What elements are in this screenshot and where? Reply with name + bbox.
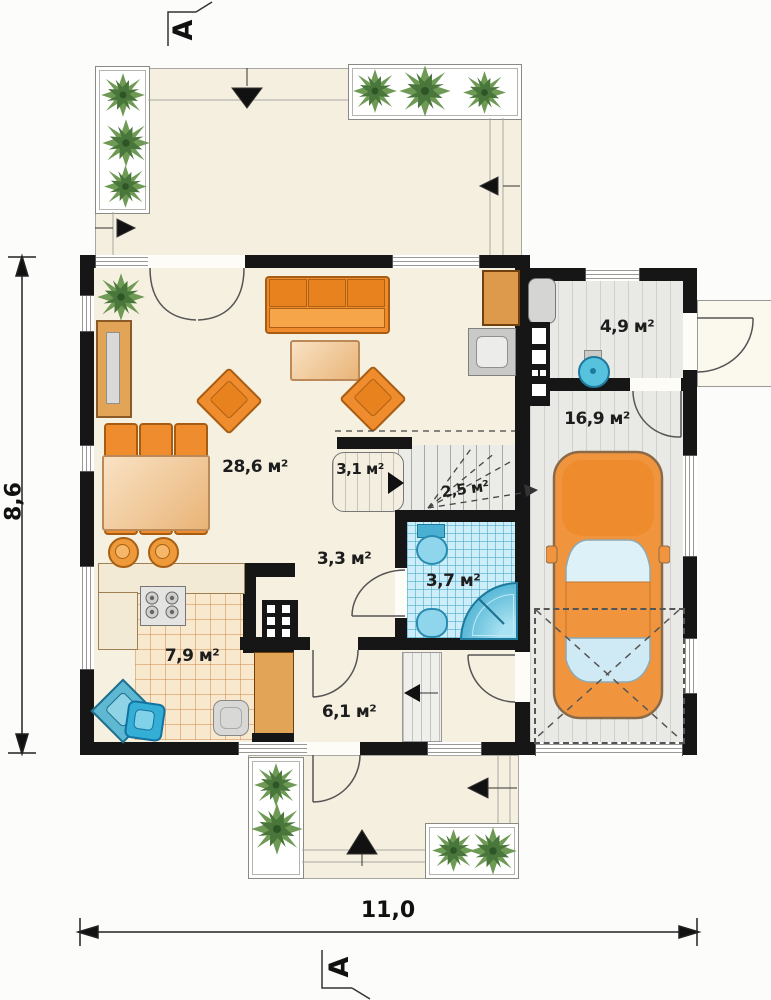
window (80, 445, 94, 472)
fireplace-unit (468, 328, 516, 376)
sofa-cushion (308, 279, 346, 307)
hall-garage-door-opening (515, 652, 530, 702)
plant-icon (468, 826, 518, 876)
window (585, 268, 640, 281)
window (392, 255, 480, 268)
side-stoop (697, 300, 771, 387)
plant-icon (100, 72, 146, 118)
flue-duct (267, 605, 275, 613)
room-area-label-hall: 3,3 м² (317, 549, 371, 569)
cabinet-cap (252, 733, 294, 742)
fridge-top (220, 707, 242, 729)
plant-icon (462, 70, 507, 115)
sofa-cushion (269, 279, 307, 307)
sink-basin (124, 700, 167, 743)
room-area-label-utility: 4,9 м² (600, 317, 654, 337)
drain (590, 368, 596, 374)
wall (337, 437, 412, 449)
utility-knob (540, 370, 546, 376)
bathroom-door-opening (395, 568, 407, 618)
shower-tray (472, 594, 514, 636)
utility-sink (578, 356, 610, 388)
flue-duct (267, 617, 275, 625)
stairs-treads (398, 445, 515, 510)
window (80, 566, 94, 670)
room-area-label-kitchen: 7,9 м² (165, 646, 219, 666)
entry-door-opening (307, 742, 360, 755)
section-marker-top: A (166, 13, 200, 47)
window (683, 638, 697, 694)
armchair-seat (353, 378, 393, 418)
sideboard-glass (106, 332, 120, 404)
wall (395, 510, 530, 522)
plant-icon (103, 164, 148, 209)
tall-cabinet (482, 270, 520, 326)
flue-duct (282, 617, 290, 625)
window (683, 455, 697, 557)
plant-icon (352, 68, 398, 114)
bar-stool (108, 537, 139, 568)
room-area-label-pantry: 3,1 м² (336, 460, 384, 478)
toilet (416, 535, 448, 565)
water-heater (528, 278, 556, 324)
dimension-width: 11,0 (348, 898, 428, 923)
room-area-label-entry: 6,1 м² (322, 702, 376, 722)
bar-stool (148, 537, 179, 568)
window (238, 742, 309, 755)
sofa (265, 276, 390, 334)
garage-door-swing-zone (534, 608, 685, 744)
window (427, 742, 482, 755)
kitchen-counter (98, 592, 138, 650)
floor-plan: 28,6 м² 3,1 м² 2,5 м² 4,9 м² 16,9 м² 3,3… (0, 0, 771, 1000)
plant-icon (250, 802, 304, 856)
dimension-height: 8,6 (2, 472, 27, 532)
plant-icon (96, 272, 146, 322)
sofa-cushion (347, 279, 385, 307)
flue-duct (267, 629, 275, 637)
fridge (213, 700, 249, 736)
sink-bowl (133, 709, 156, 732)
stool-seat (115, 544, 130, 559)
kitchen-tall-cabinet (254, 652, 294, 736)
stove (140, 586, 186, 626)
dining-table (102, 455, 210, 531)
wall (243, 563, 295, 577)
utility-appliance (532, 350, 546, 364)
section-marker-bottom: A (322, 950, 356, 984)
plant-icon (398, 64, 452, 118)
utility-appliance (532, 328, 546, 344)
armchair-seat (209, 380, 249, 420)
utility-appliance (532, 384, 546, 396)
utility-knob (532, 370, 538, 376)
coffee-table (290, 340, 360, 381)
window (80, 295, 94, 332)
window (95, 255, 150, 268)
stool-seat (155, 544, 170, 559)
wall (358, 637, 400, 650)
flue-duct (282, 629, 290, 637)
room-area-label-garage: 16,9 м² (564, 409, 630, 429)
garage-door (535, 742, 683, 756)
utility-counter (528, 322, 550, 406)
fireplace-insert (476, 336, 508, 368)
room-area-label-bathroom: 3,7 м² (426, 571, 480, 591)
utility-garage-door-opening (630, 378, 681, 391)
bathroom-sink (416, 608, 448, 638)
sofa-seat (269, 308, 385, 328)
terrace-door-opening (148, 255, 245, 268)
sideboard (96, 320, 132, 418)
flue-duct (282, 605, 290, 613)
side-door-opening (683, 313, 697, 370)
entry-mat (402, 652, 442, 742)
room-area-label-living: 28,6 м² (222, 457, 288, 477)
plant-icon (101, 118, 151, 168)
